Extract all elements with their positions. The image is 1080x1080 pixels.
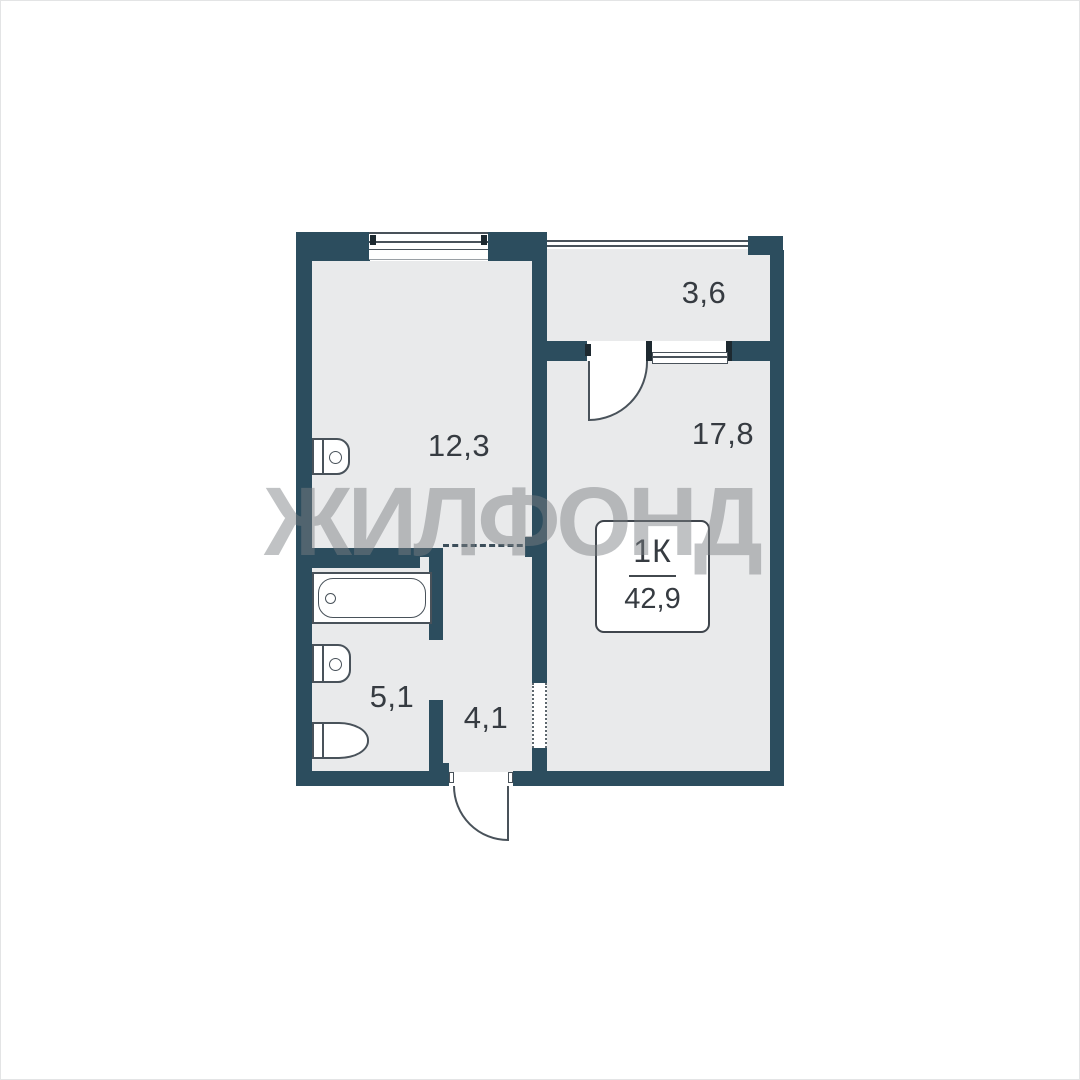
wall-top-left-block <box>296 232 370 261</box>
entry-door-leaf-and-arc <box>454 786 508 840</box>
bathroom-sink <box>312 644 351 683</box>
area-label-kitchen: 12,3 <box>404 428 514 464</box>
toilet <box>312 722 369 759</box>
bathroom-sink-rim-line <box>322 646 324 681</box>
wall-right <box>770 250 784 786</box>
entry-door-jamb-left <box>449 772 454 783</box>
wall-bottom-left <box>296 771 449 786</box>
area-label-living: 17,8 <box>668 416 778 452</box>
window-kitchen <box>369 232 488 260</box>
kitchen-sink-drain <box>329 451 342 464</box>
window-kitchen-cap-right <box>481 235 487 245</box>
area-label-balcony: 3,6 <box>649 275 759 311</box>
bathroom-sink-drain <box>329 658 342 671</box>
apartment-total-area: 42,9 <box>597 583 708 615</box>
wall-entry-side-block <box>429 763 449 771</box>
balcony-door-opening <box>587 341 646 361</box>
window-kitchen-sill-line <box>369 259 488 261</box>
balcony-glazing-line <box>547 240 748 247</box>
window-balcony-frame-line <box>653 356 727 358</box>
window-kitchen-frame <box>369 241 488 250</box>
wall-bottom-right <box>513 771 783 786</box>
wall-central-lower <box>532 748 547 771</box>
area-label-hallway: 4,1 <box>431 700 541 736</box>
floor-plan-image: 12,3 17,8 3,6 5,1 4,1 1К 42,9 ЖИЛФОНД <box>0 0 1080 1080</box>
bathtub-drain <box>325 593 336 604</box>
window-kitchen-cap-left <box>370 235 376 245</box>
wall-balcony-divider-left <box>532 341 587 361</box>
window-balcony-frame <box>652 352 728 364</box>
window-balcony <box>646 341 732 361</box>
toilet-tank-line <box>322 724 324 757</box>
agency-watermark: ЖИЛФОНД <box>264 473 759 570</box>
wall-central-upper <box>532 232 547 683</box>
wall-balcony-divider-right <box>728 341 783 361</box>
bathtub <box>312 572 432 624</box>
entry-door-jamb-right <box>508 772 513 783</box>
balcony-door-jamb <box>585 344 591 356</box>
